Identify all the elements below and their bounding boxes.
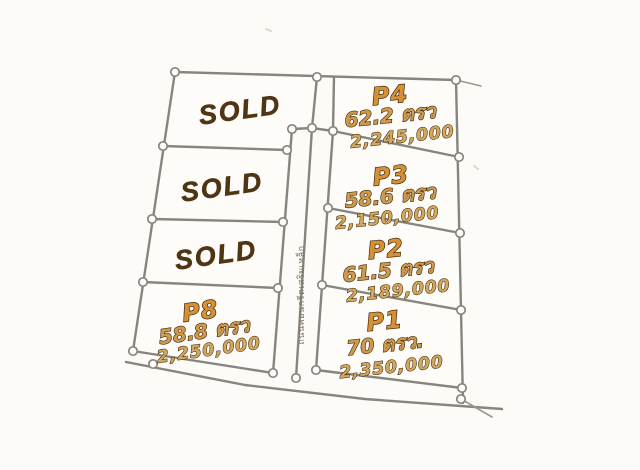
p4-left-edge xyxy=(333,77,334,131)
corner-node xyxy=(329,127,337,135)
corner-node xyxy=(279,218,287,226)
plot-map-canvas: SOLD SOLD SOLD P8 58.8 ตรว 2,250,000 P4 … xyxy=(0,0,640,470)
corner-node xyxy=(159,142,167,150)
corner-node xyxy=(274,284,282,292)
corner-node xyxy=(452,76,460,84)
corner-node xyxy=(129,347,137,355)
corner-node xyxy=(269,369,277,377)
corner-node xyxy=(456,229,464,237)
corner-node xyxy=(292,374,300,382)
road-label: ถนนคอนกรีตเสริมเหล็ก xyxy=(294,245,307,344)
corner-node xyxy=(312,366,320,374)
corner-node xyxy=(458,384,466,392)
corner-node xyxy=(457,395,465,403)
corner-node xyxy=(171,68,179,76)
corner-node xyxy=(148,215,156,223)
corner-node xyxy=(455,153,463,161)
corner-node xyxy=(313,73,321,81)
scan-speck xyxy=(266,29,271,31)
scan-speck xyxy=(474,166,478,169)
corner-node xyxy=(283,146,291,154)
corner-node xyxy=(149,360,157,368)
corner-node xyxy=(457,306,465,314)
corner-node xyxy=(308,124,316,132)
corner-node xyxy=(288,125,296,133)
plot-map: SOLD SOLD SOLD P8 58.8 ตรว 2,250,000 P4 … xyxy=(0,0,640,470)
corner-node xyxy=(324,204,332,212)
corner-node xyxy=(318,281,326,289)
corner-node xyxy=(139,278,147,286)
